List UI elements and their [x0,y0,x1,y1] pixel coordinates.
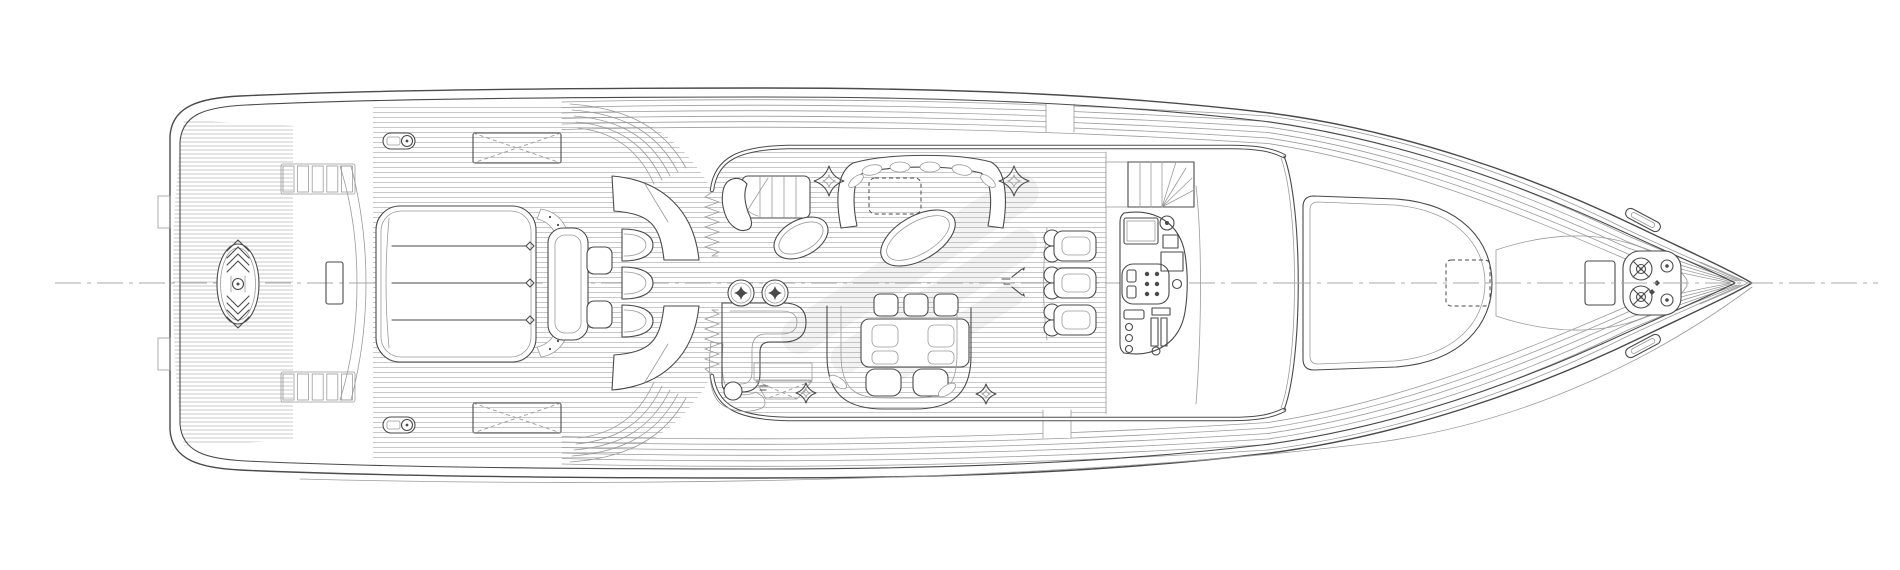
stern-tab-bottom [158,338,170,370]
helm-seat-3 [1044,304,1096,336]
dining-stool-2 [904,294,928,316]
foredeck [1285,196,1878,370]
stairs-down [1106,162,1194,207]
cleat-top [383,133,415,149]
yacht-deck-plan-canvas [0,0,1900,570]
yacht-deck-plan [0,0,1900,570]
cleat-bottom [383,417,415,433]
aft-ottoman-2 [587,301,612,328]
aft-sofa [548,228,588,340]
helm-seat-2 [1044,267,1096,299]
windlass-port [1630,258,1652,280]
stairs-up [742,176,810,218]
bar-sink [724,382,742,400]
aft-chairs [622,229,653,337]
helm-platform-edge [1196,186,1201,404]
boarding-gate-bottom [1043,410,1071,438]
aft-sunpad [376,206,536,362]
helm-seat-1 [1044,230,1096,262]
dining-stool-1 [874,294,898,316]
bar-stool-1 [728,280,754,306]
helm-console [1120,212,1187,355]
dining-stool-3 [934,294,958,316]
aft-ottoman-1 [587,247,612,274]
windlass-starboard [1630,286,1652,308]
boarding-gate-top [1046,104,1074,132]
stern-tab-top [158,196,170,228]
dining-chair-1 [866,369,901,396]
dining-table [861,319,969,367]
bar-stool-2 [762,280,788,306]
